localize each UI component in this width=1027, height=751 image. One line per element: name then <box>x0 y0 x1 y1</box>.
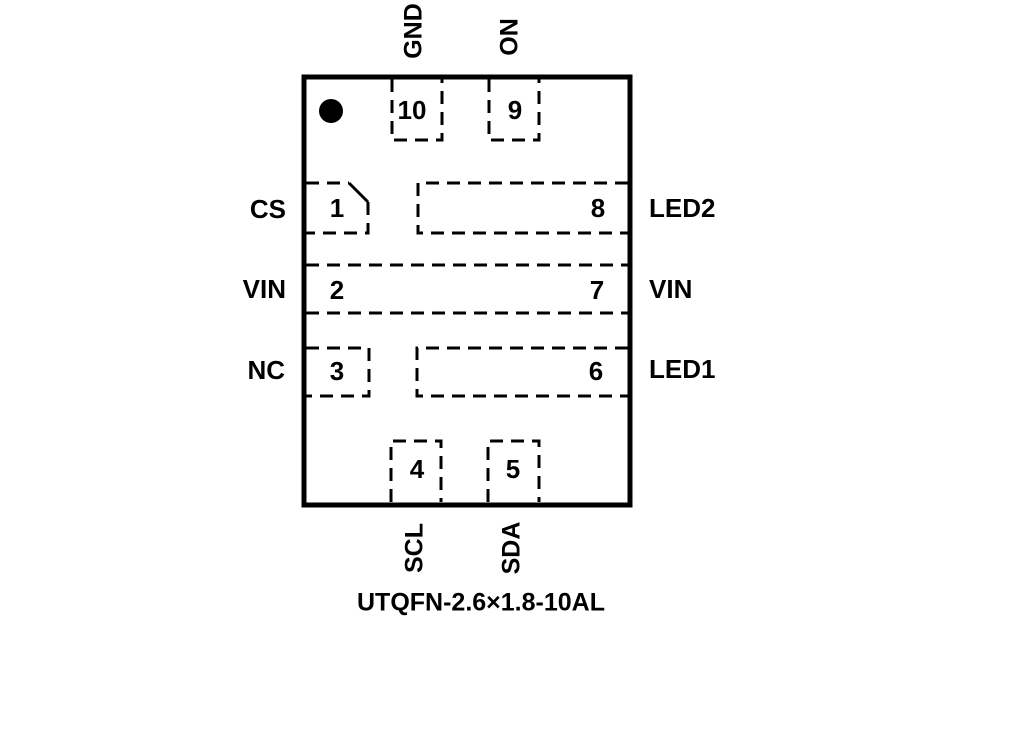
pin-8-number: 8 <box>591 195 605 221</box>
pin-1-label-cs: CS <box>250 196 286 222</box>
pin-4-label-scl: SCL <box>403 523 428 573</box>
pin-9-label-on: ON <box>498 18 523 56</box>
pin-7-label-vin: VIN <box>649 276 692 302</box>
pin-2-number: 2 <box>330 277 344 303</box>
pin-6-label-led1: LED1 <box>649 356 715 382</box>
pin-4-number: 4 <box>410 456 424 482</box>
pin-7-number: 7 <box>590 277 604 303</box>
pin-2-label-vin: VIN <box>243 276 286 302</box>
pin-10-number: 10 <box>398 97 427 123</box>
pin-3-label-nc: NC <box>247 357 285 383</box>
pin-3-number: 3 <box>330 358 344 384</box>
package-caption: UTQFN-2.6×1.8-10AL <box>357 591 605 616</box>
pin-5-number: 5 <box>506 456 520 482</box>
pin-6-number: 6 <box>589 358 603 384</box>
pin-10-label-gnd: GND <box>402 3 427 59</box>
pin1-indicator-dot <box>319 99 343 123</box>
package-body-outline <box>304 77 630 505</box>
pin-1-pad-chamfer <box>349 183 368 202</box>
pin-8-label-led2: LED2 <box>649 195 715 221</box>
pin-1-number: 1 <box>330 195 344 221</box>
pinout-diagram: 1 2 3 4 5 6 7 8 9 10 CS VIN NC LED2 VIN … <box>0 0 1027 751</box>
pin-9-number: 9 <box>508 97 522 123</box>
pin-5-label-sda: SDA <box>500 522 525 575</box>
